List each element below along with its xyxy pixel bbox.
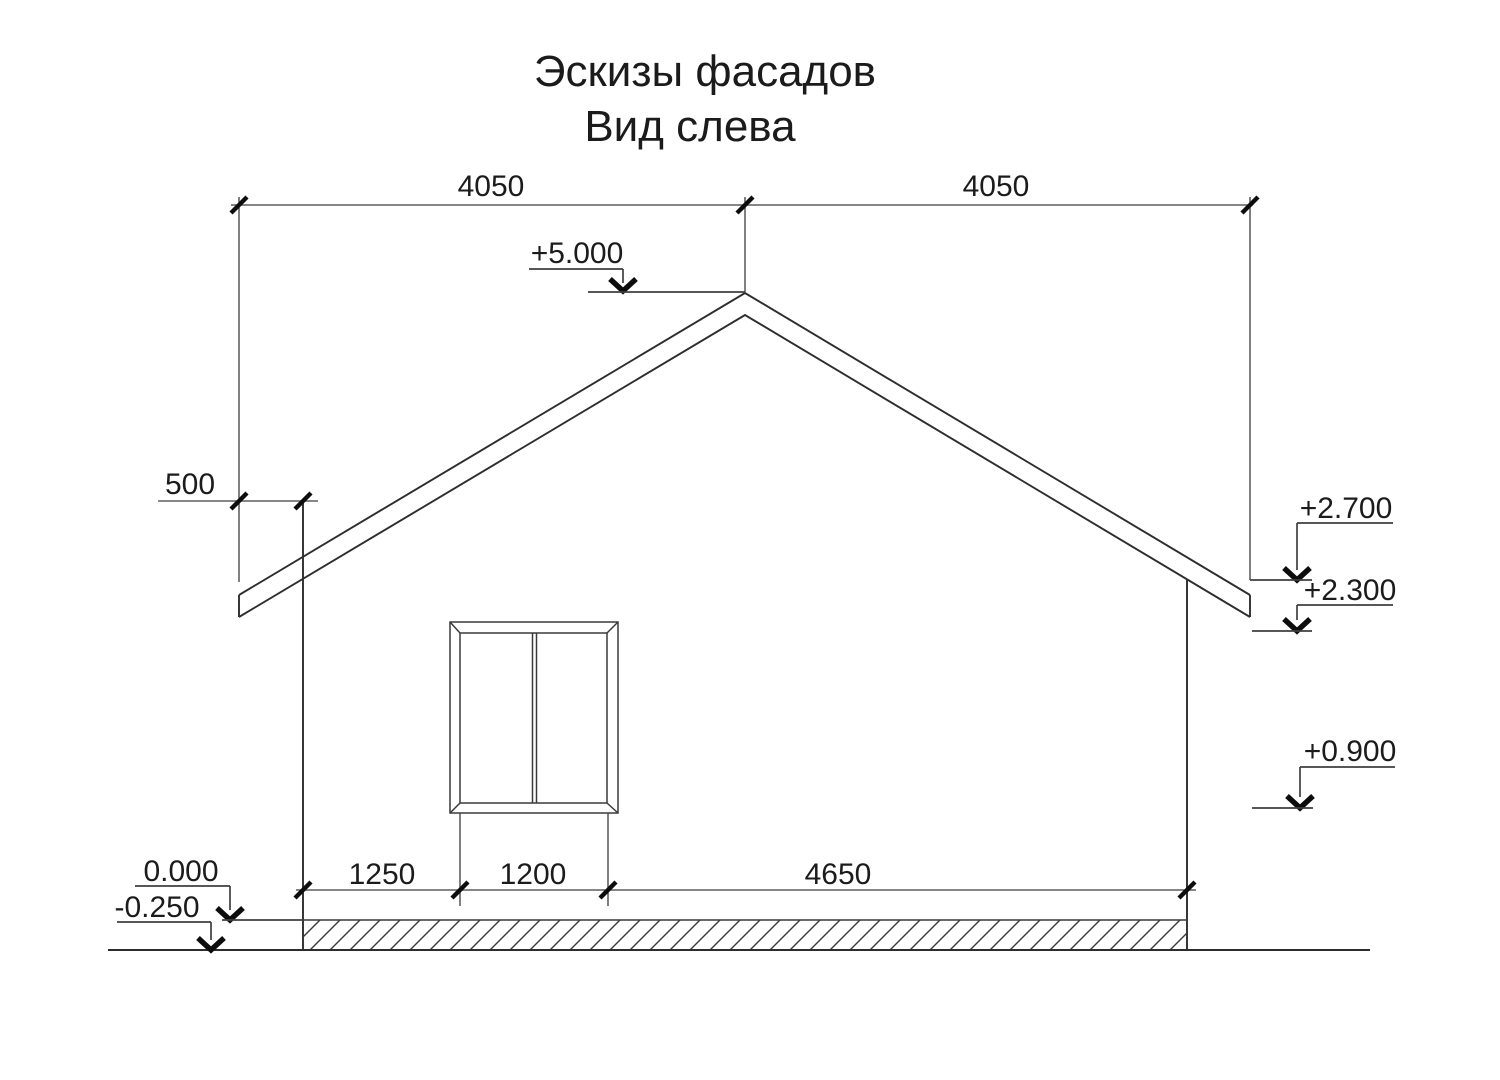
roof-upper-line — [239, 293, 1250, 595]
dimension-value-roof-right: 4050 — [963, 170, 1030, 203]
dimension-value-window-width: 1200 — [500, 858, 567, 891]
elevation-value-ground: -0.250 — [114, 891, 199, 924]
dimension-bottom-chain: 1250 1200 4650 — [295, 813, 1196, 906]
elevation-value-window-sill: +0.900 — [1304, 735, 1397, 768]
elevation-value-ridge: +5.000 — [531, 237, 624, 270]
drawing-sheet: Эскизы фасадов Вид слева 4050 — [0, 0, 1500, 1080]
window-bevel-top-right — [607, 622, 618, 633]
walls — [303, 501, 1187, 950]
plinth-hatch — [303, 920, 1187, 950]
window-bevel-bottom-left — [450, 803, 460, 813]
elevation-value-floor: 0.000 — [143, 855, 218, 888]
elevation-mark-window-sill: +0.900 — [1252, 735, 1396, 808]
window-outer-frame — [450, 622, 618, 813]
foundation-plinth — [303, 920, 1187, 950]
elevation-arrow-down — [1284, 619, 1310, 631]
dimension-roof-halves: 4050 4050 — [231, 170, 1258, 582]
window-bevel-top-left — [450, 622, 460, 633]
elevation-mark-eave-top: +2.700 — [1250, 492, 1393, 580]
dimension-value-window-to-right-wall: 4650 — [805, 858, 872, 891]
drawing-title: Эскизы фасадов — [534, 47, 876, 96]
facade-left-elevation-drawing: Эскизы фасадов Вид слева 4050 — [0, 0, 1500, 1080]
roof — [239, 293, 1250, 617]
dimension-value-eave-overhang: 500 — [165, 468, 215, 501]
roof-lower-line — [239, 315, 1250, 617]
elevation-value-eave-top: +2.700 — [1300, 492, 1393, 525]
dimension-eave-overhang: 500 — [158, 468, 318, 509]
elevation-value-eave-bottom: +2.300 — [1304, 574, 1397, 607]
dimension-value-roof-left: 4050 — [458, 170, 525, 203]
window-bevel-bottom-right — [607, 803, 618, 813]
elevation-mark-ridge: +5.000 — [529, 237, 745, 292]
drawing-subtitle: Вид слева — [584, 102, 796, 151]
elevation-mark-ground: -0.250 — [114, 891, 224, 950]
window-inner-frame — [460, 633, 607, 803]
window — [450, 622, 618, 813]
elevation-arrow-down — [1287, 796, 1313, 808]
title-block: Эскизы фасадов Вид слева — [534, 47, 876, 151]
elevation-mark-eave-bottom: +2.300 — [1252, 574, 1396, 631]
dimension-value-wall-to-window: 1250 — [349, 858, 416, 891]
